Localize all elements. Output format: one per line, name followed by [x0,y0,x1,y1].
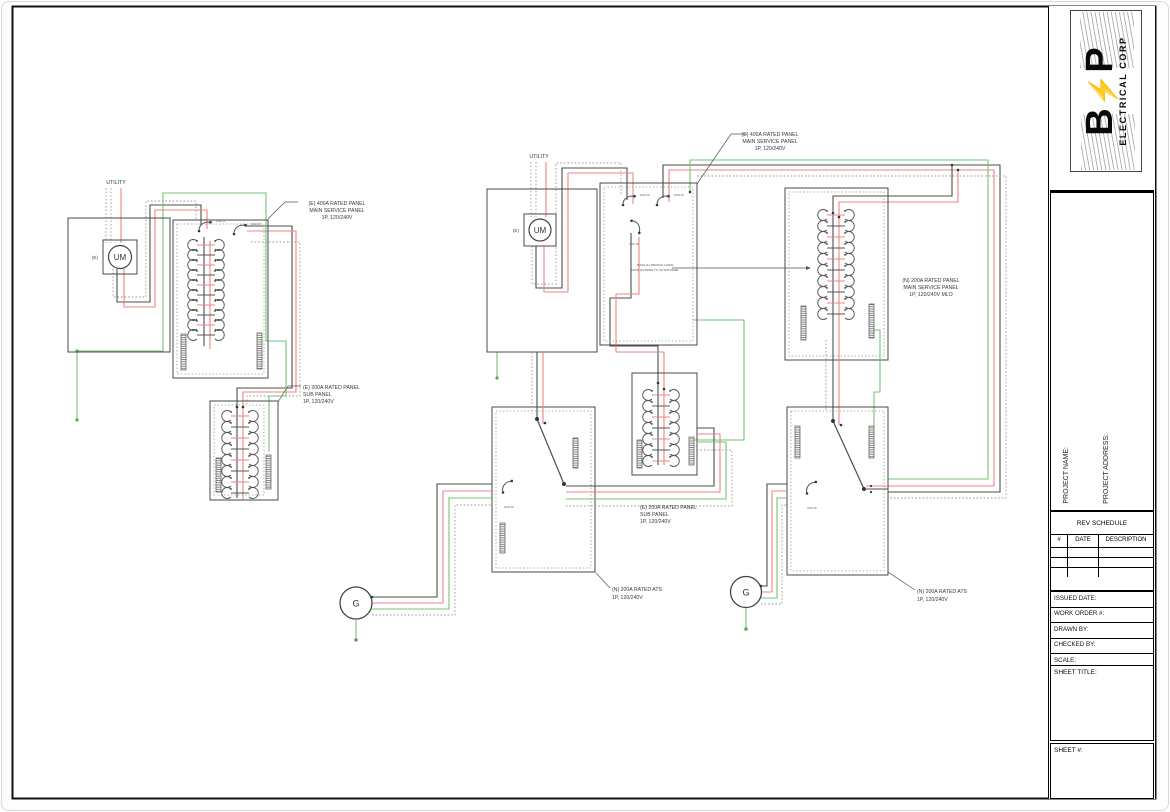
project-address-label: PROJECT ADDRESS: [1103,434,1110,504]
label-line: 1P, 120/240V [612,595,643,601]
label-line: SUB PANEL [640,512,669,518]
note-line: FROM (E) PANEL TO (N) SUB PANEL [631,268,679,272]
sheet-border [13,7,1156,799]
label-line: (E) 400A RATED PANEL [309,201,366,207]
label-line: (E) 200A RATED PANEL [640,505,697,511]
mid-utility-label: UTILITY [529,154,549,160]
rev-schedule-title: REV SCHEDULE [1051,512,1153,534]
drawn-by-field: DRAWN BY: [1050,622,1154,639]
lightning-bolt-icon: ⚡ [1088,73,1118,108]
rev-col-number: # [1051,535,1068,547]
label-line: 1P, 120/240V [322,215,353,221]
title-block: B⚡P ELECTRICAL CORP PROJECT NAME: PROJEC… [1048,6,1155,799]
label-line: (N) 200A RATED ATS [917,589,968,595]
label-line: (E) 200A RATED PANEL [303,385,360,391]
label-line: 1P, 120/240V [755,146,786,152]
mid-meter-label: UM [534,226,547,235]
issued-date-field: ISSUED DATE: [1050,591,1154,608]
breaker-tag: 200A 2P [216,219,226,223]
breaker-tag: 200A 2P [504,505,514,509]
breaker-tag: 200A 2P [640,193,650,197]
label-line: MAIN SERVICE PANEL [742,139,797,145]
project-info-section: PROJECT NAME: PROJECT ADDRESS: [1050,192,1154,511]
logo-wordmark: B⚡P [1084,16,1116,166]
rev-table-row [1051,567,1153,577]
one-line-diagram: UTILITY UM (E) 2 [0,0,1170,812]
label-line: SUB PANEL [303,392,332,398]
label-line: 1P, 120/240V [640,519,671,525]
label-line: MAIN SERVICE PANEL [903,285,958,291]
note-line: MOVE ALL BRANCH LOADS [637,263,674,267]
rev-table-row [1051,557,1153,567]
left-meter-label: UM [114,253,127,262]
label-line: 1P, 120/240V MLO [909,292,952,298]
rev-col-date: DATE [1068,535,1099,547]
label-line: MAIN SERVICE PANEL [309,208,364,214]
sheet-title-section: SHEET TITLE: [1050,665,1154,741]
label-line: (N) 200A RATED ATS [612,587,663,593]
breaker-tag: 200A 2P [674,193,684,197]
company-logo: B⚡P ELECTRICAL CORP [1070,10,1142,172]
breaker-tag: 200A 2P [629,242,639,246]
label-line: 1P, 120/240V [917,597,948,603]
label-line: (E) 400A RATED PANEL [742,132,799,138]
right-main-panel-label: (N) 200A RATED PANEL MAIN SERVICE PANEL … [902,278,959,298]
label-line: 1P, 120/240V [303,399,334,405]
right-generator-label: G [742,588,749,598]
left-utility-label: UTILITY [106,180,126,186]
drawing-sheet: UTILITY UM (E) 2 [0,0,1170,812]
rev-col-description: DESCRIPTION [1099,535,1153,547]
rev-table-row [1051,547,1153,557]
sheet-title-label: SHEET TITLE: [1054,669,1097,676]
sheet-number-label: SHEET #: [1054,747,1083,754]
sheet-number-section: SHEET #: [1050,743,1154,799]
mid-meter-existing-tag: (E) [513,228,520,233]
breaker-tag: 200A 2P [807,506,817,510]
rev-table-header: # DATE DESCRIPTION [1051,534,1153,547]
logo-subtitle: ELECTRICAL CORP [1118,16,1128,166]
breaker-tag: 200A 2P [251,222,261,226]
mid-generator-label: G [352,599,359,609]
label-line: (N) 200A RATED PANEL [902,278,959,284]
logo-section: B⚡P ELECTRICAL CORP [1050,6,1154,192]
checked-by-field: CHECKED BY: [1050,638,1154,655]
project-name-label: PROJECT NAME: [1063,447,1070,504]
left-meter-existing-tag: (E) [92,255,99,260]
rev-schedule-section: REV SCHEDULE # DATE DESCRIPTION [1050,511,1154,591]
work-order-field: WORK ORDER #: [1050,607,1154,624]
